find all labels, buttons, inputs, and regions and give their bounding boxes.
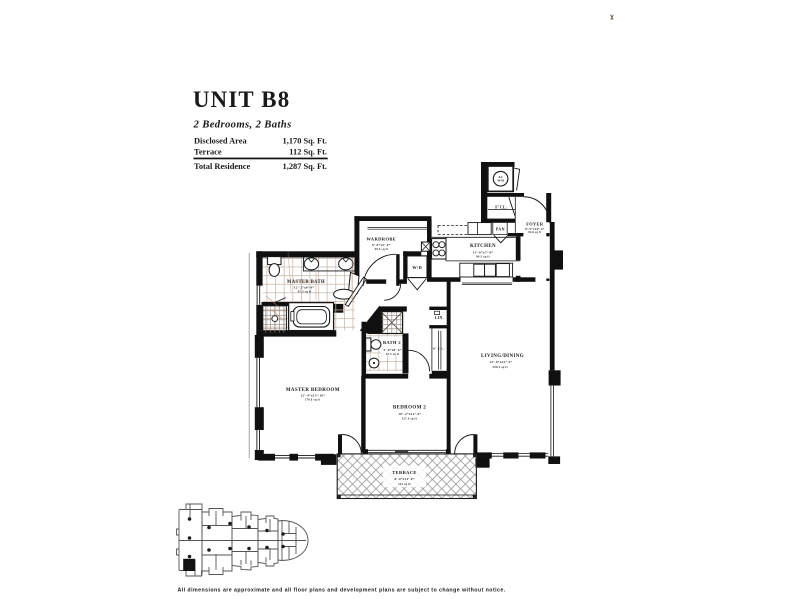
svg-text:FOYER: FOYER — [526, 222, 544, 227]
svg-text:Disclosed Area: Disclosed Area — [194, 137, 247, 146]
svg-text:1,170 Sq. Ft.: 1,170 Sq. Ft. — [283, 137, 327, 146]
svg-text:112 Sq. Ft.: 112 Sq. Ft. — [289, 147, 327, 156]
svg-text:LIN.: LIN. — [435, 316, 444, 320]
svg-text:84.3 sq ft: 84.3 sq ft — [476, 254, 490, 258]
svg-text:WARDROBE: WARDROBE — [366, 236, 396, 241]
svg-text:8’-0”x14’-0”: 8’-0”x14’-0” — [395, 477, 415, 481]
svg-text:1,287 Sq. Ft.: 1,287 Sq. Ft. — [283, 162, 327, 171]
svg-text:BATH 2: BATH 2 — [383, 340, 401, 345]
svg-text:42.5 sq ft: 42.5 sq ft — [386, 352, 400, 356]
svg-text:LIVING/DINING: LIVING/DINING — [481, 354, 524, 359]
svg-text:KITCHEN: KITCHEN — [470, 244, 496, 249]
svg-text:BEDROOM 2: BEDROOM 2 — [393, 405, 426, 410]
svg-text:112 sq ft: 112 sq ft — [398, 482, 410, 486]
svg-text:290.4 sq ft: 290.4 sq ft — [493, 365, 508, 369]
svg-text:UNIT B8: UNIT B8 — [193, 87, 290, 112]
svg-text:PAN: PAN — [496, 227, 505, 232]
svg-text:B: B — [186, 561, 192, 571]
svg-text:49.5 sq ft: 49.5 sq ft — [375, 247, 389, 251]
svg-text:10’-4”x12’-4”: 10’-4”x12’-4” — [398, 412, 421, 416]
svg-text:Terrace: Terrace — [194, 147, 222, 156]
svg-text:13’-0”x22’-4”: 13’-0”x22’-4” — [489, 360, 512, 364]
svg-text:6’ CL.: 6’ CL. — [433, 347, 444, 351]
svg-text:2 Bedrooms, 2 Baths: 2 Bedrooms, 2 Baths — [193, 119, 292, 131]
svg-text:F’CL.: F’CL. — [495, 204, 507, 209]
svg-text:84.6 sq ft: 84.6 sq ft — [528, 231, 541, 234]
svg-text:All dimensions are approximate: All dimensions are approximate and all f… — [178, 588, 506, 594]
svg-text:170.6 sq ft: 170.6 sq ft — [305, 398, 320, 402]
svg-text:W/D: W/D — [412, 265, 422, 270]
svg-text:127.4 sq ft: 127.4 sq ft — [402, 416, 417, 420]
svg-text:97.3 sq ft: 97.3 sq ft — [298, 290, 312, 294]
svg-text:TERRACE: TERRACE — [392, 470, 416, 475]
svg-text:MASTER BEDROOM: MASTER BEDROOM — [286, 388, 340, 393]
svg-text:Total Residence: Total Residence — [194, 162, 251, 171]
svg-text:W/H: W/H — [497, 179, 504, 183]
